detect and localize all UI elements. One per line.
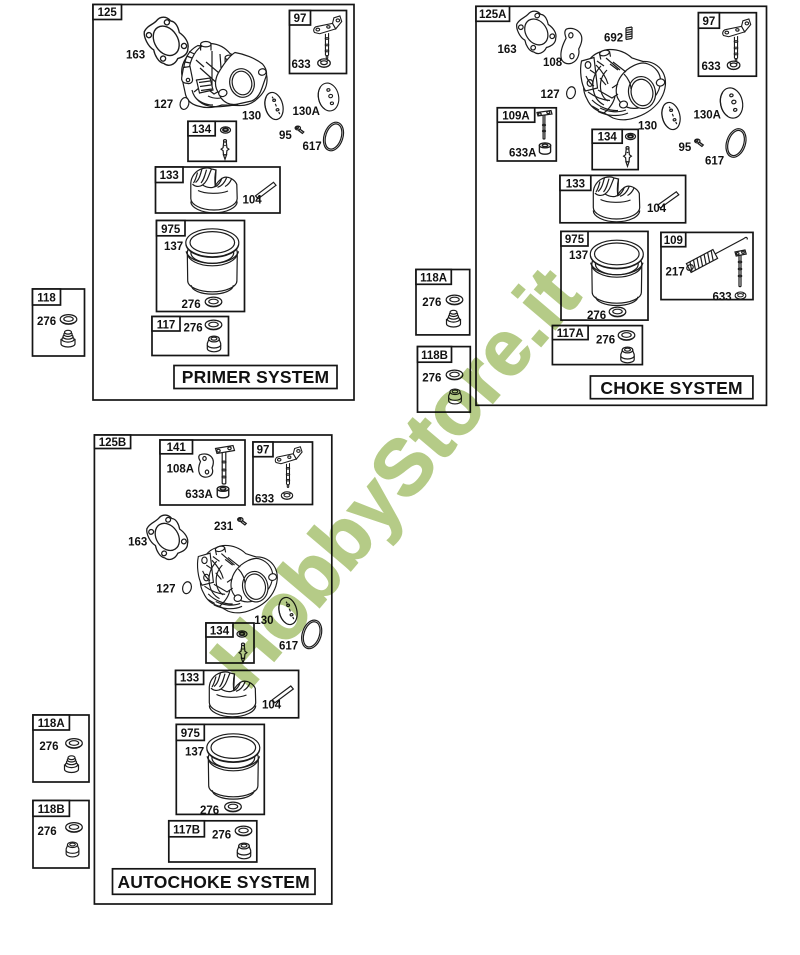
svg-text:127: 127 bbox=[541, 89, 560, 101]
svg-text:633: 633 bbox=[292, 59, 311, 71]
svg-text:633A: 633A bbox=[509, 147, 537, 159]
svg-text:127: 127 bbox=[154, 99, 173, 111]
svg-text:134: 134 bbox=[598, 132, 618, 144]
svg-text:633A: 633A bbox=[185, 489, 213, 501]
svg-text:163: 163 bbox=[128, 537, 147, 549]
svg-text:AUTOCHOKE SYSTEM: AUTOCHOKE SYSTEM bbox=[117, 872, 309, 892]
svg-text:133: 133 bbox=[180, 673, 199, 685]
svg-text:PRIMER SYSTEM: PRIMER SYSTEM bbox=[182, 367, 329, 387]
svg-text:633: 633 bbox=[702, 61, 721, 73]
svg-text:276: 276 bbox=[596, 334, 615, 346]
svg-text:217: 217 bbox=[666, 267, 685, 279]
svg-text:109A: 109A bbox=[502, 110, 530, 122]
svg-text:133: 133 bbox=[160, 170, 179, 182]
svg-text:137: 137 bbox=[164, 241, 183, 253]
svg-text:104: 104 bbox=[243, 195, 263, 207]
svg-text:130: 130 bbox=[638, 120, 657, 132]
svg-text:118B: 118B bbox=[38, 804, 65, 816]
svg-text:125A: 125A bbox=[479, 9, 507, 21]
svg-text:276: 276 bbox=[422, 297, 441, 309]
svg-text:125B: 125B bbox=[99, 437, 127, 449]
svg-text:617: 617 bbox=[303, 141, 322, 153]
svg-text:137: 137 bbox=[185, 746, 204, 758]
svg-text:975: 975 bbox=[161, 224, 181, 236]
svg-text:97: 97 bbox=[703, 16, 716, 28]
svg-text:137: 137 bbox=[569, 250, 588, 262]
svg-text:617: 617 bbox=[705, 156, 724, 168]
svg-text:109: 109 bbox=[664, 235, 683, 247]
svg-text:95: 95 bbox=[679, 142, 692, 154]
svg-text:125: 125 bbox=[98, 7, 118, 19]
svg-text:633: 633 bbox=[713, 292, 732, 304]
svg-text:118A: 118A bbox=[420, 272, 447, 284]
svg-text:276: 276 bbox=[182, 299, 201, 311]
svg-text:163: 163 bbox=[498, 44, 517, 56]
svg-text:104: 104 bbox=[262, 699, 282, 711]
svg-text:97: 97 bbox=[294, 13, 307, 25]
svg-text:141: 141 bbox=[167, 442, 187, 454]
svg-text:276: 276 bbox=[184, 322, 203, 334]
svg-text:276: 276 bbox=[200, 805, 219, 817]
svg-text:118: 118 bbox=[37, 293, 56, 305]
svg-text:CHOKE SYSTEM: CHOKE SYSTEM bbox=[600, 378, 742, 398]
svg-text:231: 231 bbox=[214, 521, 234, 533]
svg-text:276: 276 bbox=[212, 830, 231, 842]
svg-text:276: 276 bbox=[37, 316, 56, 328]
svg-text:130A: 130A bbox=[694, 109, 722, 121]
svg-text:134: 134 bbox=[192, 124, 212, 136]
svg-text:104: 104 bbox=[647, 203, 667, 215]
svg-text:117B: 117B bbox=[173, 824, 200, 836]
svg-text:276: 276 bbox=[39, 741, 58, 753]
svg-text:133: 133 bbox=[566, 178, 585, 190]
svg-text:95: 95 bbox=[279, 130, 292, 142]
svg-text:127: 127 bbox=[156, 584, 175, 596]
svg-text:692: 692 bbox=[604, 33, 623, 45]
svg-text:276: 276 bbox=[38, 826, 57, 838]
svg-text:108A: 108A bbox=[167, 463, 195, 475]
svg-text:117: 117 bbox=[157, 319, 176, 331]
svg-text:975: 975 bbox=[181, 728, 201, 740]
svg-text:97: 97 bbox=[257, 445, 270, 457]
svg-text:130A: 130A bbox=[293, 106, 321, 118]
svg-text:130: 130 bbox=[242, 111, 261, 123]
svg-text:975: 975 bbox=[565, 234, 585, 246]
svg-text:108: 108 bbox=[543, 57, 563, 69]
svg-text:633: 633 bbox=[255, 493, 274, 505]
svg-text:163: 163 bbox=[126, 50, 145, 62]
svg-text:118A: 118A bbox=[38, 718, 65, 730]
